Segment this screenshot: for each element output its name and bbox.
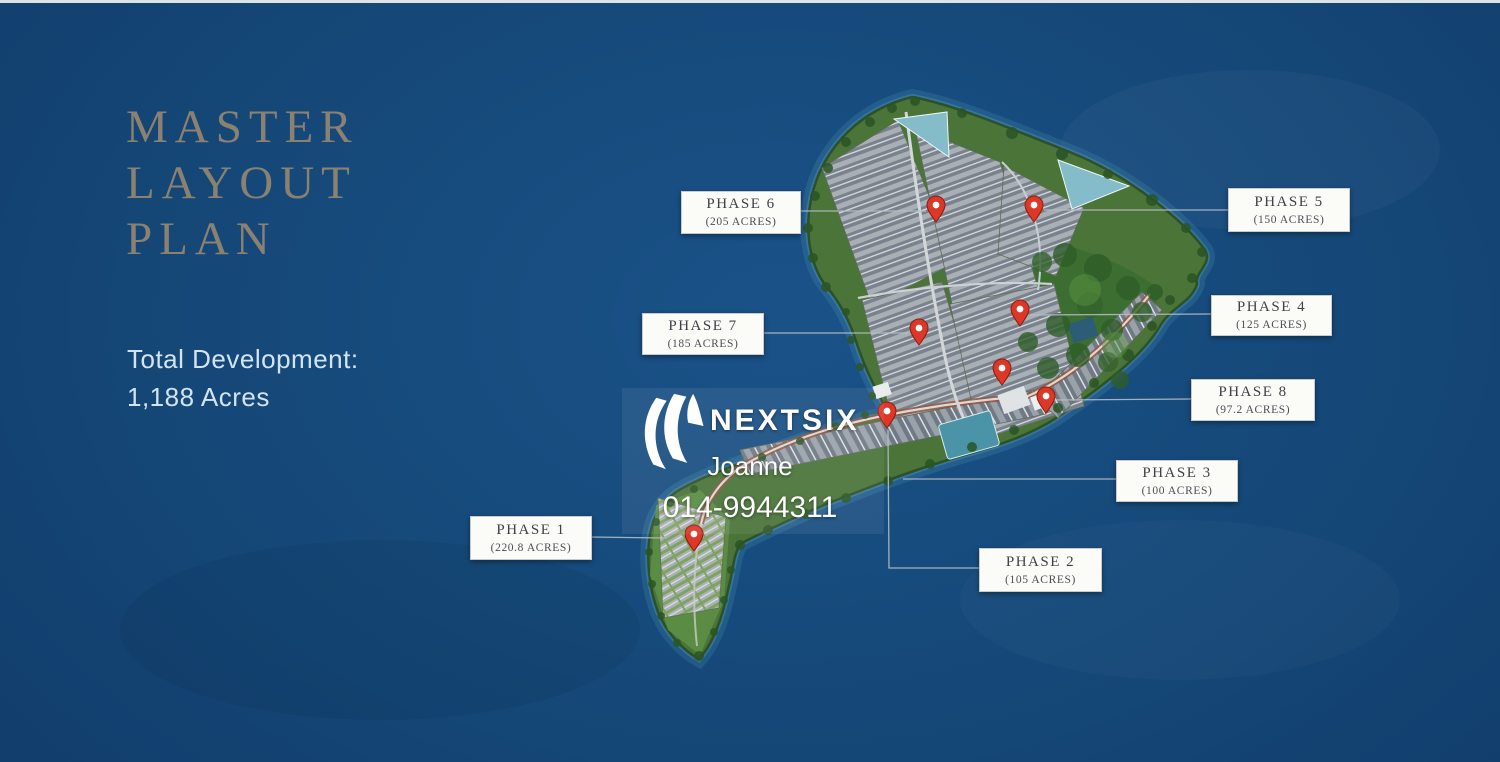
phase-label-phase-3: PHASE 3 (100 ACRES) (1116, 460, 1238, 502)
phase-name: PHASE 6 (706, 196, 775, 213)
phase-acreage: (125 ACRES) (1236, 318, 1307, 332)
page-title-line: MASTER (126, 99, 359, 155)
watermark-brand: NEXTSIX (710, 404, 859, 438)
phase-name: PHASE 7 (668, 318, 737, 335)
watermark-agent-phone: 014-9944311 (635, 491, 865, 525)
phase-acreage: (97.2 ACRES) (1216, 403, 1290, 417)
page-title-line: LAYOUT (126, 155, 359, 211)
page-title-line: PLAN (126, 211, 359, 267)
total-development-value: 1,188 Acres (127, 378, 359, 416)
phase-name: PHASE 1 (496, 522, 565, 539)
phase-name: PHASE 4 (1237, 299, 1306, 316)
phase-acreage: (185 ACRES) (668, 337, 739, 351)
phase-name: PHASE 8 (1218, 384, 1287, 401)
phase-name: PHASE 2 (1006, 554, 1075, 571)
phase-acreage: (220.8 ACRES) (491, 541, 572, 555)
total-development-label: Total Development: (127, 340, 359, 378)
page-title: MASTER LAYOUT PLAN (126, 99, 359, 267)
master-layout-plan-slide: MASTER LAYOUT PLAN Total Development: 1,… (0, 0, 1500, 762)
phase-label-phase-7: PHASE 7 (185 ACRES) (642, 313, 764, 355)
phase-name: PHASE 5 (1254, 194, 1323, 211)
total-development: Total Development: 1,188 Acres (127, 340, 359, 416)
phase-label-phase-6: PHASE 6 (205 ACRES) (681, 191, 801, 234)
phase-label-phase-8: PHASE 8 (97.2 ACRES) (1191, 379, 1315, 421)
phase-label-phase-4: PHASE 4 (125 ACRES) (1211, 295, 1332, 336)
watermark-agent-name: Joanne (640, 451, 860, 482)
phase-label-phase-2: PHASE 2 (105 ACRES) (979, 548, 1102, 592)
phase-acreage: (105 ACRES) (1005, 573, 1076, 587)
phase-name: PHASE 3 (1142, 465, 1211, 482)
phase-label-phase-5: PHASE 5 (150 ACRES) (1228, 188, 1350, 232)
phase-acreage: (205 ACRES) (706, 215, 777, 229)
phase-label-phase-1: PHASE 1 (220.8 ACRES) (470, 516, 592, 560)
phase-acreage: (100 ACRES) (1142, 484, 1213, 498)
phase-acreage: (150 ACRES) (1254, 213, 1325, 227)
